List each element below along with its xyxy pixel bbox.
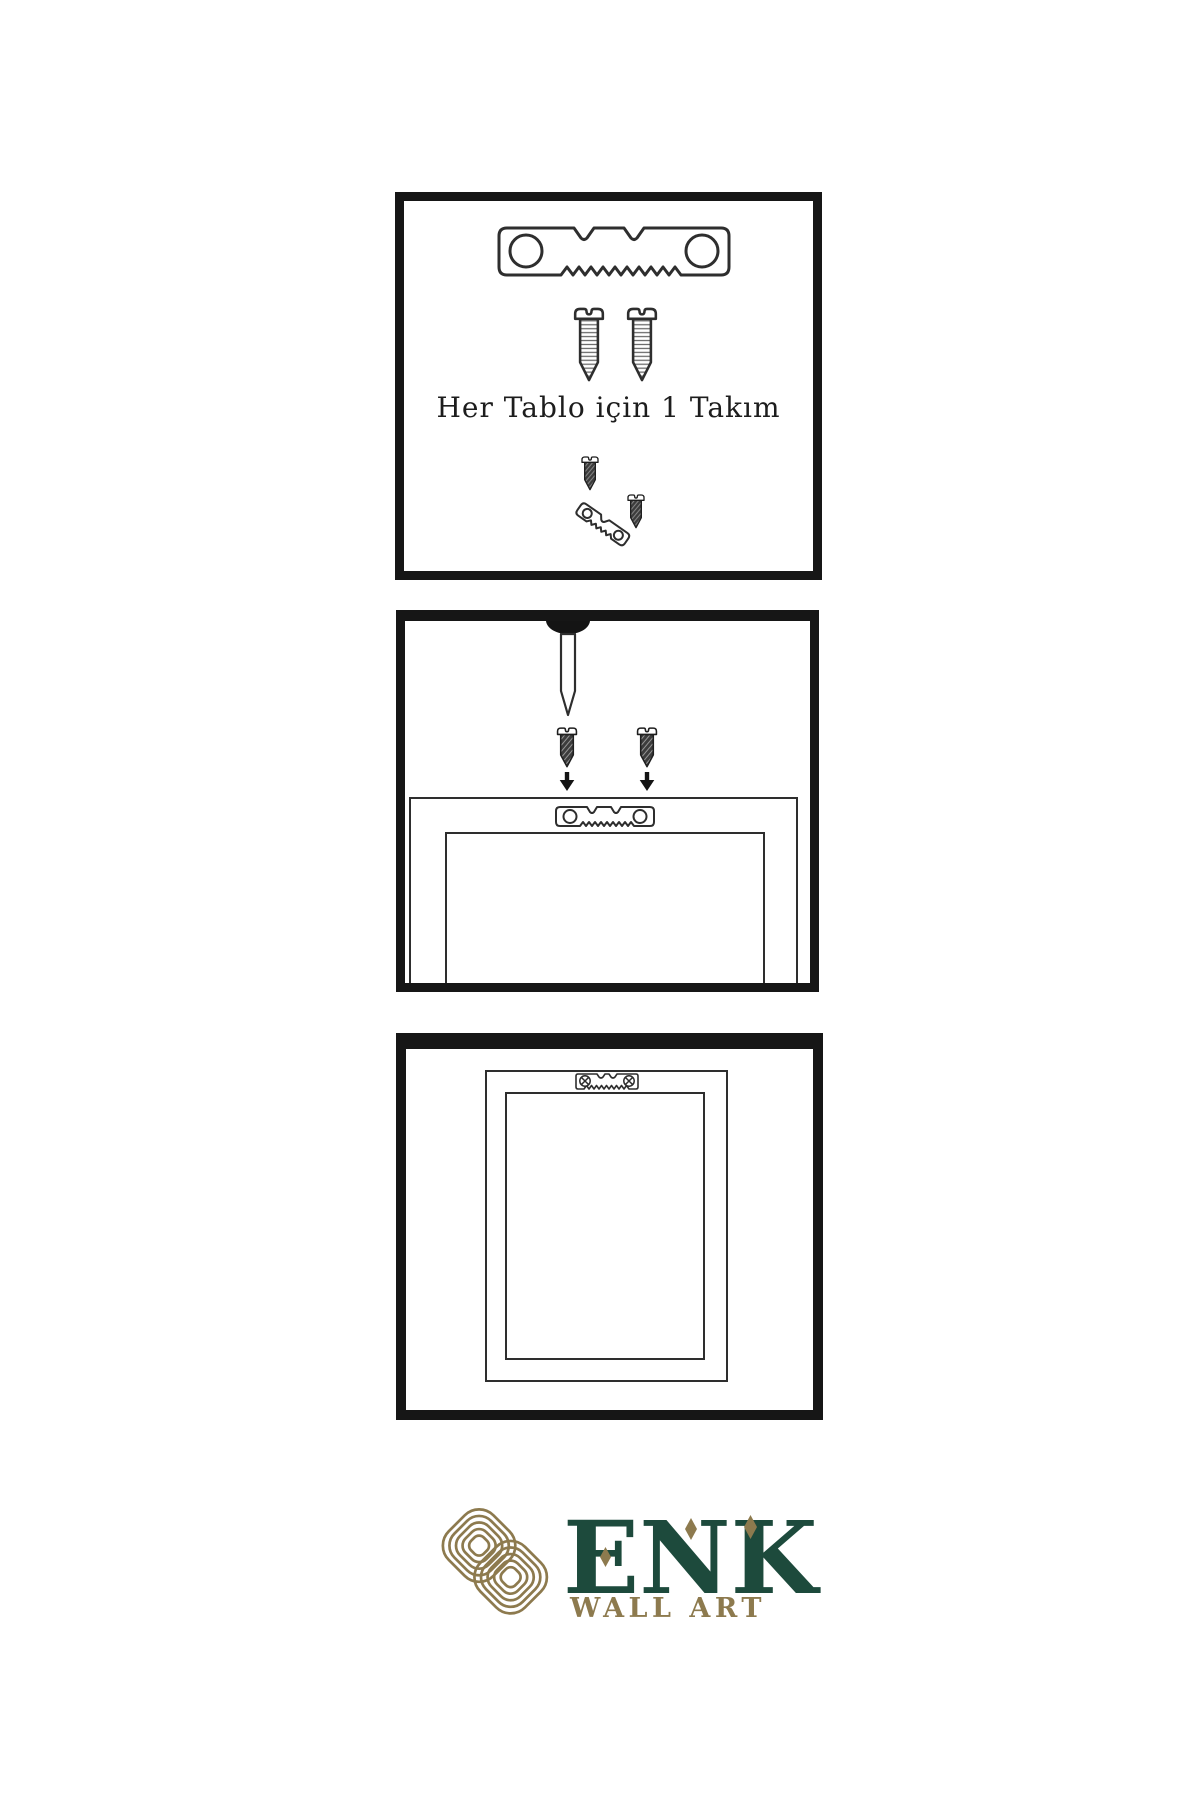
screw-into-hanger-icon <box>572 452 657 552</box>
brand-subtitle: WALL ART <box>570 1595 766 1622</box>
sawtooth-hanger-small-icon <box>553 804 657 829</box>
screw-down-arrow-left-icon <box>547 725 587 791</box>
hung-frame-panel <box>396 1033 823 1420</box>
wall-mounting-panel <box>396 610 819 992</box>
hardware-kit-panel: Her Tablo için 1 Takım <box>395 192 822 580</box>
mounted-hanger-icon <box>573 1072 641 1092</box>
nail-icon <box>545 621 591 721</box>
two-screws-icon <box>554 301 664 386</box>
screw-down-arrow-right-icon <box>627 725 667 791</box>
instruction-sheet: Her Tablo için 1 Takım <box>0 0 1200 1800</box>
sawtooth-hanger-icon <box>494 223 734 280</box>
frame-inner-outline <box>505 1092 705 1360</box>
kit-caption: Her Tablo için 1 Takım <box>404 393 813 424</box>
knot-logo-icon <box>434 1496 558 1629</box>
frame-back-inner-outline <box>445 832 765 992</box>
